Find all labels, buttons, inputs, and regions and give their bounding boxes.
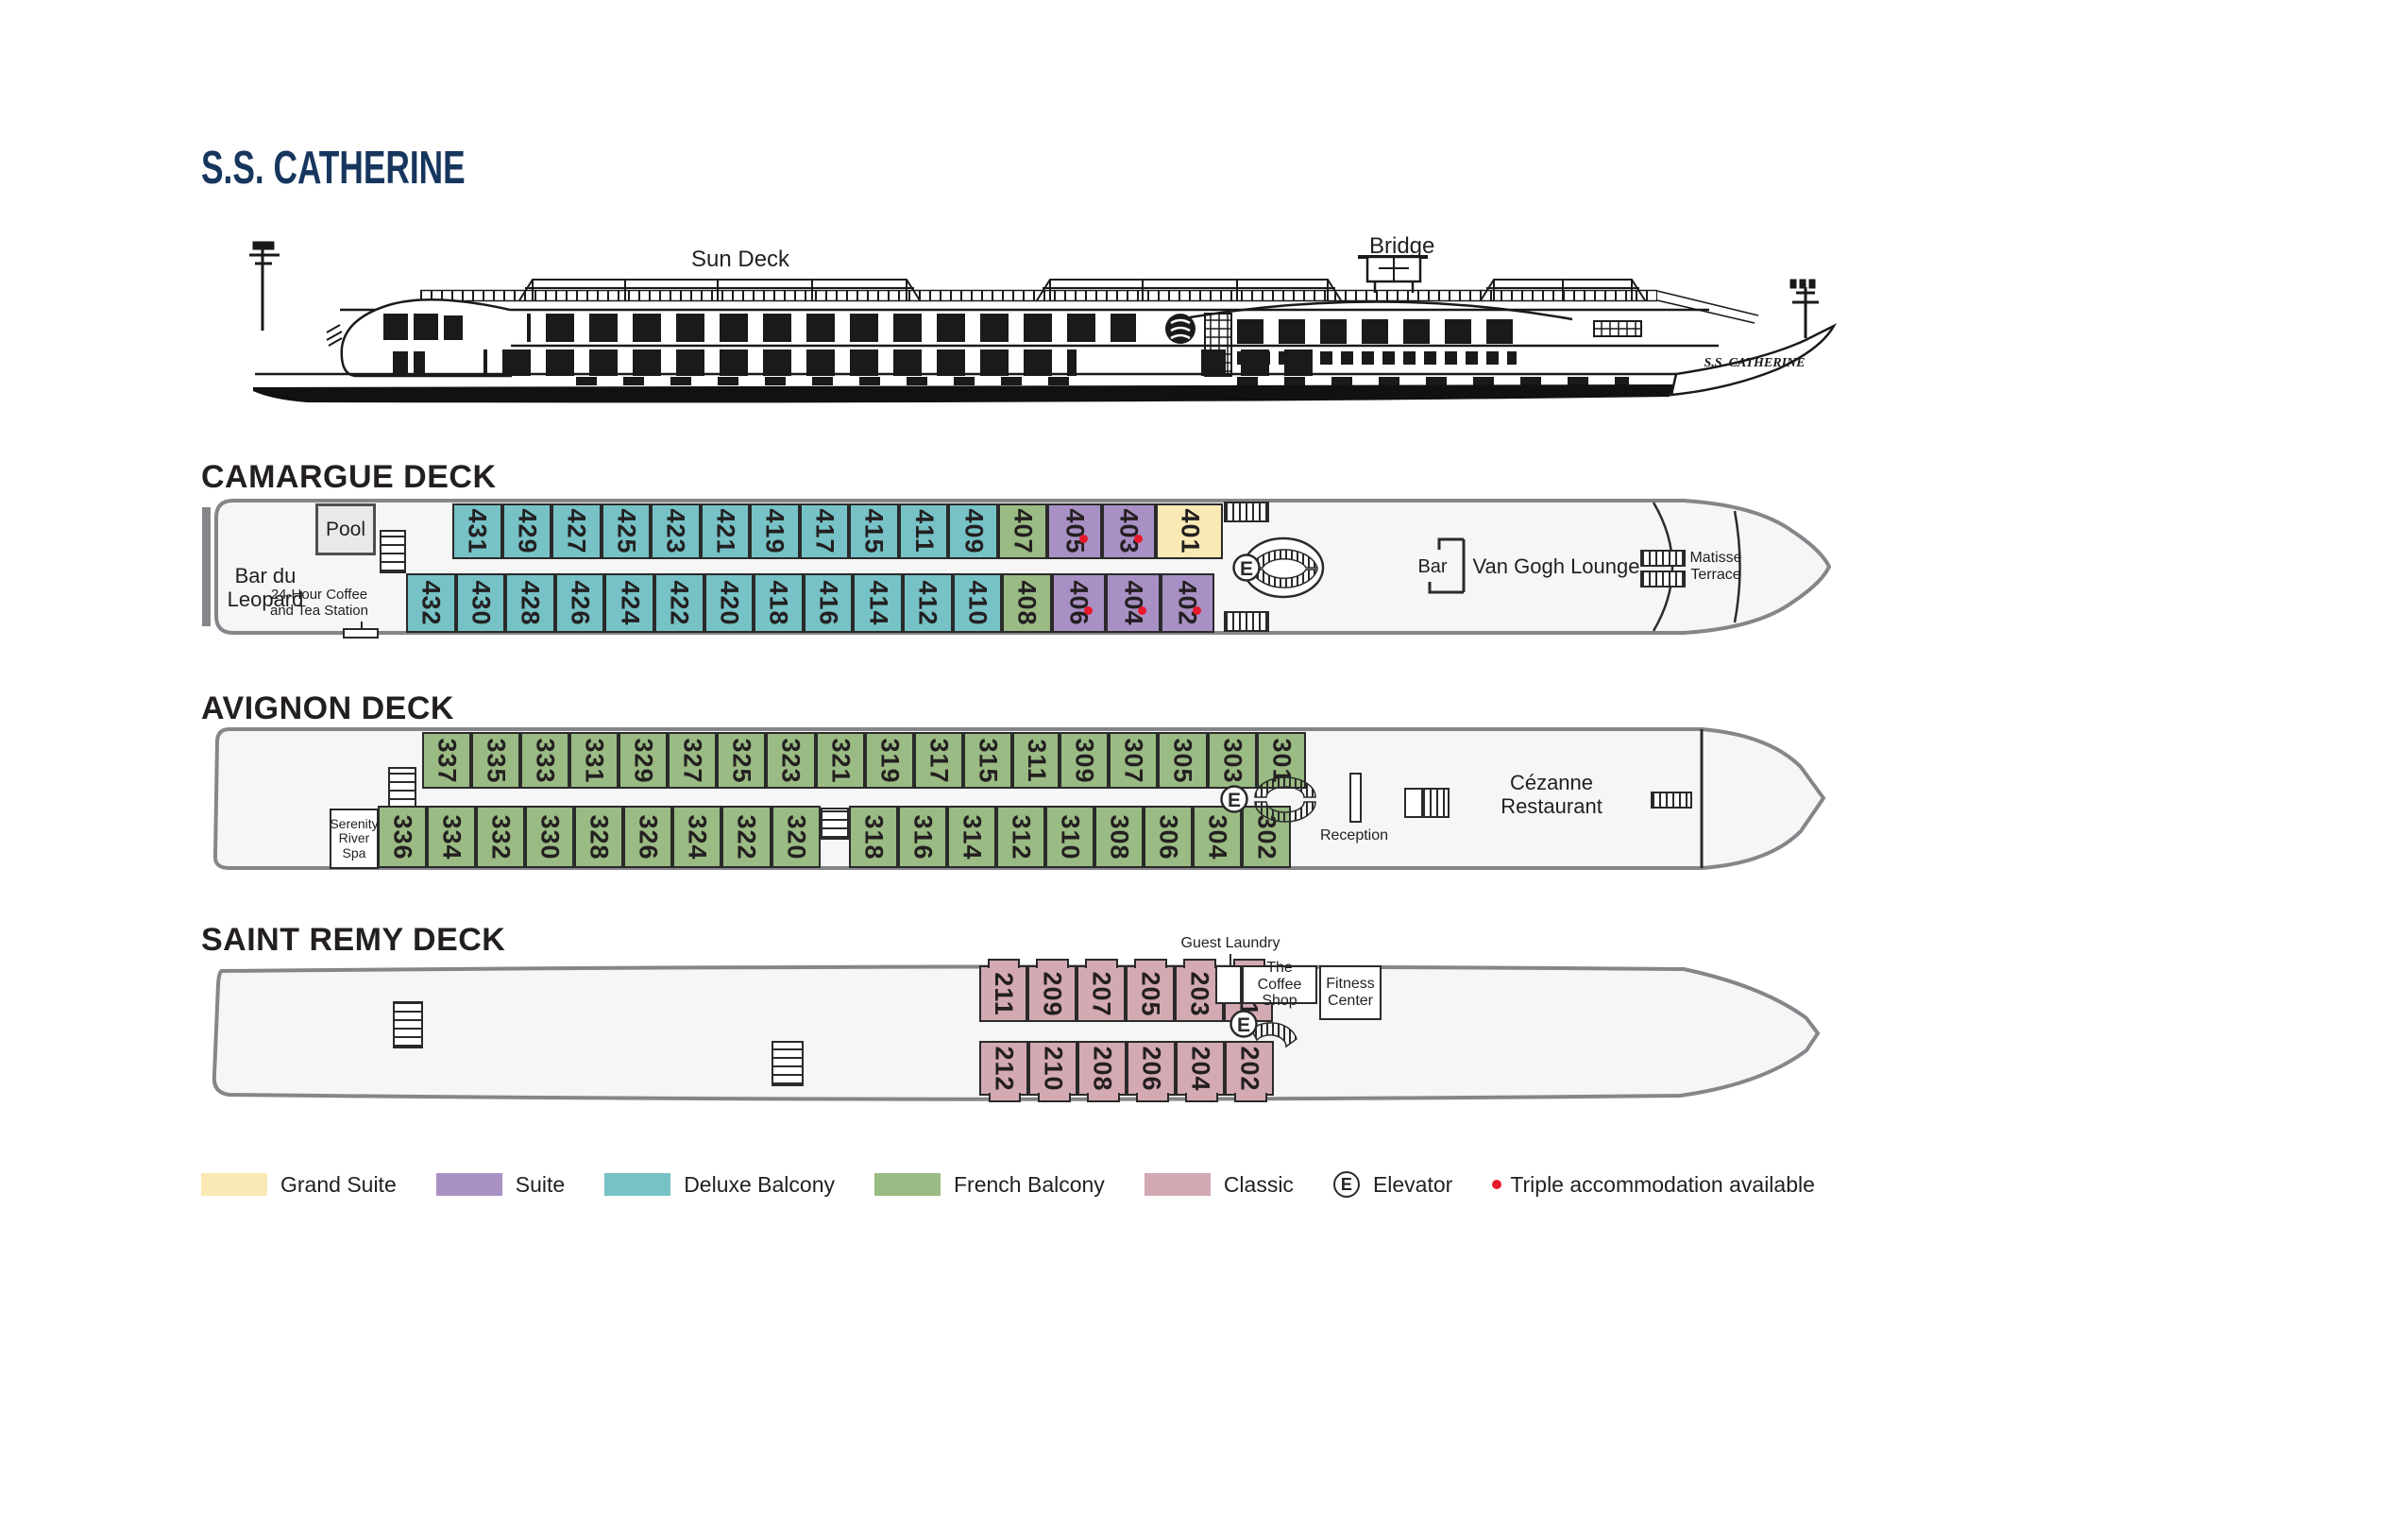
coffee-table-icon [343, 628, 379, 639]
stairs-icon [1224, 502, 1269, 522]
legend-label: Deluxe Balcony [684, 1172, 835, 1198]
cabin-number: 317 [924, 738, 953, 783]
cabin-number: 426 [566, 580, 595, 625]
cabin-number: 427 [562, 508, 591, 554]
cabin-319: 319 [865, 732, 914, 789]
cabin-number: 405 [1060, 508, 1090, 554]
cabin-307: 307 [1109, 732, 1158, 789]
cabin-332: 332 [476, 806, 525, 868]
venue-guest-laundry: Guest Laundry [1145, 935, 1315, 952]
cabin-330: 330 [525, 806, 574, 868]
svg-text:E: E [1228, 790, 1241, 811]
legend-item-suite: Suite [436, 1172, 565, 1198]
cabin-number: 327 [678, 738, 707, 783]
deck-camargue: Bar du Leopard Pool 24-Hour Coffee and T… [201, 496, 1844, 638]
cabin-number: 209 [1037, 971, 1066, 1016]
cabin-320: 320 [772, 806, 821, 868]
mast-icon [249, 242, 280, 331]
avignon-row-top: 3373353333313293273253233213193173153113… [422, 732, 1223, 789]
cabin-209: 209 [1027, 965, 1077, 1022]
cabin-number: 305 [1168, 738, 1197, 783]
venue-coffee-tea-station: 24-Hour Coffee and Tea Station [256, 587, 382, 620]
bow-superstructure [1190, 301, 1641, 365]
elevator-icon: E [1219, 1005, 1306, 1060]
elevator-icon: E [1232, 536, 1327, 600]
legend-item-classic: Classic [1145, 1172, 1294, 1198]
avignon-row-bottom: 3363343323303283263243223203183163143123… [378, 806, 1223, 868]
cabin-number: 322 [732, 814, 761, 860]
sun-deck-label: Sun Deck [691, 247, 790, 272]
cabin-311: 311 [1012, 732, 1060, 789]
cabin-number: 428 [516, 580, 545, 625]
cabin-210: 210 [1028, 1041, 1077, 1096]
ship-profile-illustration: Sun Deck Bridge [198, 234, 1841, 418]
cabin-305: 305 [1158, 732, 1207, 789]
stairs-icon [772, 1041, 804, 1086]
legend-item-grand: Grand Suite [201, 1172, 397, 1198]
venue-bar: Bar [1412, 556, 1453, 578]
cabin-207: 207 [1077, 965, 1126, 1022]
cabin-number: 422 [665, 580, 694, 625]
bow-ship-name: S.S. CATHERINE [1704, 356, 1806, 370]
deck-heading-camargue: CAMARGUE DECK [201, 459, 497, 496]
pool: Pool [315, 503, 376, 555]
legend-item-french: French Balcony [874, 1172, 1105, 1198]
venue-matisse-terrace: Matisse Terrace [1663, 550, 1769, 585]
cabin-number: 316 [907, 814, 937, 860]
cabin-415: 415 [849, 503, 899, 559]
cabin-number: 321 [825, 738, 855, 783]
cabin-318: 318 [849, 806, 898, 868]
cabin-431: 431 [452, 503, 502, 559]
cabin-403: 403 [1102, 503, 1156, 559]
cabin-212: 212 [979, 1041, 1028, 1096]
triple-dot [1134, 535, 1143, 543]
cabin-333: 333 [520, 732, 569, 789]
cabin-number: 407 [1009, 508, 1038, 554]
cabin-number: 417 [809, 508, 839, 554]
cabin-419: 419 [750, 503, 800, 559]
cabin-416: 416 [804, 573, 854, 633]
cabin-number: 323 [776, 738, 805, 783]
cabin-number: 319 [874, 738, 904, 783]
stairs-icon [380, 530, 406, 573]
cabin-number: 337 [432, 738, 462, 783]
cabin-326: 326 [623, 806, 672, 868]
cabin-number: 211 [989, 972, 1018, 1016]
deck-heading-saint-remy: SAINT REMY DECK [201, 922, 505, 959]
cabin-number: 404 [1118, 580, 1147, 625]
cabin-number: 411 [909, 509, 939, 554]
cabin-310: 310 [1045, 806, 1094, 868]
venue-serenity-river-spa: Serenity River Spa [330, 809, 379, 869]
venue-coffee-shop: The Coffee Shop [1242, 965, 1317, 1004]
cabin-number: 409 [958, 508, 988, 554]
cabin-number: 402 [1173, 580, 1202, 625]
cabin-414: 414 [853, 573, 903, 633]
cabin-number: 403 [1114, 508, 1144, 554]
cabin-420: 420 [704, 573, 755, 633]
cabin-406: 406 [1052, 573, 1106, 633]
cabin-314: 314 [947, 806, 996, 868]
cabin-number: 309 [1070, 738, 1099, 783]
cabin-323: 323 [766, 732, 815, 789]
legend: Grand SuiteSuiteDeluxe BalconyFrench Bal… [201, 1171, 1815, 1198]
cabin-401: 401 [1156, 503, 1223, 559]
cabin-321: 321 [816, 732, 865, 789]
cabin-number: 333 [531, 738, 560, 783]
legend-swatch [604, 1173, 670, 1196]
cabin-407: 407 [998, 503, 1048, 559]
venue-van-gogh-lounge: Van Gogh Lounge [1457, 554, 1655, 578]
cabin-329: 329 [619, 732, 668, 789]
cabin-410: 410 [953, 573, 1003, 633]
triple-dot [1193, 606, 1201, 615]
saint-remy-row-bottom: 212210208206204202 [979, 1041, 1213, 1096]
cabin-206: 206 [1127, 1041, 1176, 1096]
cabin-412: 412 [903, 573, 953, 633]
cabin-337: 337 [422, 732, 471, 789]
cabin-number: 425 [611, 508, 640, 554]
cabin-number: 412 [913, 580, 942, 625]
svg-text:E: E [1237, 1014, 1250, 1036]
legend-item-deluxe: Deluxe Balcony [604, 1172, 835, 1198]
cabin-316: 316 [898, 806, 947, 868]
cabin-number: 406 [1064, 580, 1094, 625]
legend-label: Classic [1224, 1172, 1294, 1198]
cabin-205: 205 [1126, 965, 1175, 1022]
cabin-number: 410 [962, 580, 992, 625]
cabin-315: 315 [963, 732, 1012, 789]
cabin-number: 320 [781, 814, 810, 860]
cabin-327: 327 [668, 732, 717, 789]
triple-dot-icon [1492, 1180, 1501, 1189]
cabin-number: 429 [512, 508, 541, 554]
cabin-423: 423 [651, 503, 701, 559]
cabin-number: 326 [634, 814, 663, 860]
cabin-number: 314 [957, 814, 986, 860]
cabin-number: 408 [1012, 580, 1042, 625]
cabin-number: 212 [990, 1046, 1019, 1091]
cabin-number: 205 [1135, 971, 1164, 1016]
cabin-number: 335 [482, 738, 511, 783]
cabin-306: 306 [1144, 806, 1193, 868]
cabin-number: 206 [1137, 1046, 1166, 1091]
cabin-402: 402 [1161, 573, 1214, 633]
cabin-number: 325 [727, 738, 756, 783]
cabin-336: 336 [378, 806, 427, 868]
legend-item-elevator: E Elevator [1333, 1171, 1452, 1198]
cabin-335: 335 [471, 732, 520, 789]
legend-swatch [874, 1173, 941, 1196]
cabin-number: 424 [615, 580, 644, 625]
camargue-row-top: 4314294274254234214194174154114094074054… [452, 503, 1223, 559]
deck-saint-remy: 211209207205203201 212210208206204202 Gu… [201, 962, 1844, 1103]
cabin-number: 334 [437, 814, 466, 860]
cabin-334: 334 [427, 806, 476, 868]
deck-avignon: Serenity River Spa 337335333331329327325… [201, 725, 1844, 872]
cabin-number: 208 [1088, 1046, 1117, 1091]
cabin-number: 430 [466, 580, 495, 625]
cabin-411: 411 [899, 503, 949, 559]
cabin-number: 328 [585, 814, 614, 860]
cabin-417: 417 [800, 503, 850, 559]
camargue-row-bottom: 4324304284264244224204184164144124104084… [406, 573, 1214, 633]
cabin-number: 311 [1022, 739, 1051, 783]
upper-windows [527, 314, 1136, 342]
stairs-icon [1224, 611, 1269, 632]
cabin-208: 208 [1077, 1041, 1127, 1096]
cabin-number: 312 [1006, 814, 1035, 860]
reception-desk [1349, 773, 1362, 823]
venue-fitness-center: Fitness Center [1319, 965, 1382, 1020]
venue-reception: Reception [1293, 827, 1416, 844]
cabin-324: 324 [672, 806, 721, 868]
cabin-number: 307 [1119, 738, 1148, 783]
cabin-number: 336 [388, 814, 417, 860]
legend-item-triple: Triple accommodation available [1492, 1172, 1815, 1198]
legend-swatch [436, 1173, 502, 1196]
deck-heading-avignon: AVIGNON DECK [201, 690, 454, 727]
bridge-structure [1358, 257, 1428, 293]
cabin-322: 322 [721, 806, 771, 868]
legend-label: Suite [516, 1172, 565, 1198]
stairs-icon [393, 1001, 423, 1048]
deck-plan-page: S.S. CATHERINE Sun Deck Bridge [0, 0, 2408, 1516]
cabin-number: 418 [764, 580, 793, 625]
cabin-number: 210 [1039, 1046, 1068, 1091]
porthole-band [562, 377, 1091, 385]
cabin-424: 424 [604, 573, 654, 633]
hull-band [253, 384, 1673, 402]
cabin-328: 328 [574, 806, 623, 868]
cabin-325: 325 [717, 732, 766, 789]
cabin-number: 318 [858, 814, 888, 860]
cabin-number: 310 [1055, 814, 1084, 860]
cabin-number: 315 [973, 738, 1002, 783]
cabin-405: 405 [1047, 503, 1101, 559]
cabin-331: 331 [569, 732, 619, 789]
stairs-icon [1404, 788, 1450, 818]
legend-swatch [1145, 1173, 1211, 1196]
cabin-427: 427 [551, 503, 602, 559]
cabin-number: 432 [416, 580, 446, 625]
cabin-421: 421 [701, 503, 751, 559]
stairs-icon [1651, 792, 1692, 809]
cabin-number: 416 [814, 580, 843, 625]
stairs-icon [821, 808, 849, 840]
guest-laundry-room [1215, 965, 1242, 1004]
stairs-icon [388, 767, 416, 810]
cabin-number: 306 [1153, 814, 1182, 860]
cabin-number: 329 [629, 738, 658, 783]
cabin-number: 308 [1104, 814, 1133, 860]
cabin-number: 420 [714, 580, 743, 625]
cabin-number: 421 [710, 508, 739, 554]
cabin-number: 207 [1086, 971, 1115, 1016]
cabin-430: 430 [456, 573, 506, 633]
cabin-418: 418 [754, 573, 804, 633]
cabin-425: 425 [602, 503, 652, 559]
cabin-312: 312 [996, 806, 1045, 868]
cabin-429: 429 [502, 503, 552, 559]
cabin-432: 432 [406, 573, 456, 633]
cabin-number: 203 [1184, 971, 1213, 1016]
cabin-404: 404 [1106, 573, 1160, 633]
venue-cezanne-restaurant: Cézanne Restaurant [1457, 771, 1646, 819]
legend-label: French Balcony [954, 1172, 1105, 1198]
legend-swatch [201, 1173, 267, 1196]
saint-remy-row-top: 211209207205203201 [979, 965, 1213, 1022]
cabin-number: 401 [1175, 508, 1204, 554]
cabin-426: 426 [555, 573, 605, 633]
lower-windows [483, 349, 1077, 376]
stairwell-slot [821, 806, 849, 868]
cabin-408: 408 [1002, 573, 1052, 633]
cabin-422: 422 [654, 573, 704, 633]
cabin-number: 419 [760, 508, 789, 554]
cabin-204: 204 [1176, 1041, 1225, 1096]
cabin-number: 330 [535, 814, 565, 860]
svg-text:E: E [1240, 558, 1253, 580]
cabin-317: 317 [914, 732, 963, 789]
triple-dot [1084, 606, 1093, 615]
elevator-icon: E [1333, 1171, 1360, 1198]
cabin-number: 331 [580, 738, 609, 783]
cabin-number: 431 [463, 508, 492, 554]
cabin-428: 428 [505, 573, 555, 633]
cabin-number: 415 [859, 508, 889, 554]
page-title: S.S. CATHERINE [201, 142, 466, 195]
cabin-409: 409 [948, 503, 998, 559]
legend-label: Grand Suite [280, 1172, 397, 1198]
cabin-309: 309 [1060, 732, 1109, 789]
cabin-number: 332 [486, 814, 516, 860]
elevator-icon: E [1219, 767, 1323, 831]
cabin-number: 324 [683, 814, 712, 860]
bow-mast-icon [1790, 280, 1819, 338]
cabin-number: 204 [1186, 1046, 1215, 1091]
cabin-number: 423 [661, 508, 690, 554]
cabin-308: 308 [1094, 806, 1144, 868]
cabin-number: 414 [863, 580, 892, 625]
cabin-211: 211 [979, 965, 1027, 1022]
